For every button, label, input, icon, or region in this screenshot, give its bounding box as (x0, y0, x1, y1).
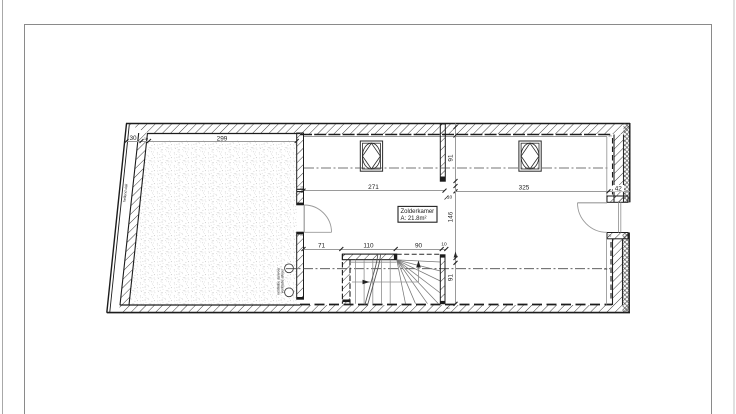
svg-text:299: 299 (217, 135, 228, 142)
svg-text:71: 71 (318, 243, 326, 250)
svg-text:25: 25 (608, 234, 612, 238)
svg-text:325: 325 (519, 185, 530, 192)
svg-text:A: 21.8m²: A: 21.8m² (401, 216, 427, 222)
svg-text:25: 25 (300, 186, 304, 190)
svg-text:90: 90 (415, 243, 423, 250)
svg-text:42: 42 (615, 186, 623, 193)
svg-text:2x: 2x (609, 134, 613, 138)
svg-text:25: 25 (443, 133, 447, 137)
svg-text:91: 91 (447, 274, 454, 282)
svg-text:146: 146 (448, 211, 455, 222)
svg-text:30: 30 (129, 135, 137, 142)
svg-text:ventilatie afvoer: ventilatie afvoer (281, 268, 285, 293)
svg-text:110: 110 (363, 243, 374, 250)
svg-text:10: 10 (441, 242, 447, 248)
svg-text:91: 91 (448, 154, 455, 162)
svg-text:10: 10 (604, 267, 608, 271)
svg-text:10: 10 (144, 137, 148, 141)
svg-text:Zolderkamer: Zolderkamer (401, 209, 435, 215)
svg-text:25: 25 (300, 233, 304, 237)
svg-text:2x: 2x (447, 306, 451, 310)
svg-text:271: 271 (368, 184, 379, 191)
svg-text:10: 10 (447, 195, 453, 201)
